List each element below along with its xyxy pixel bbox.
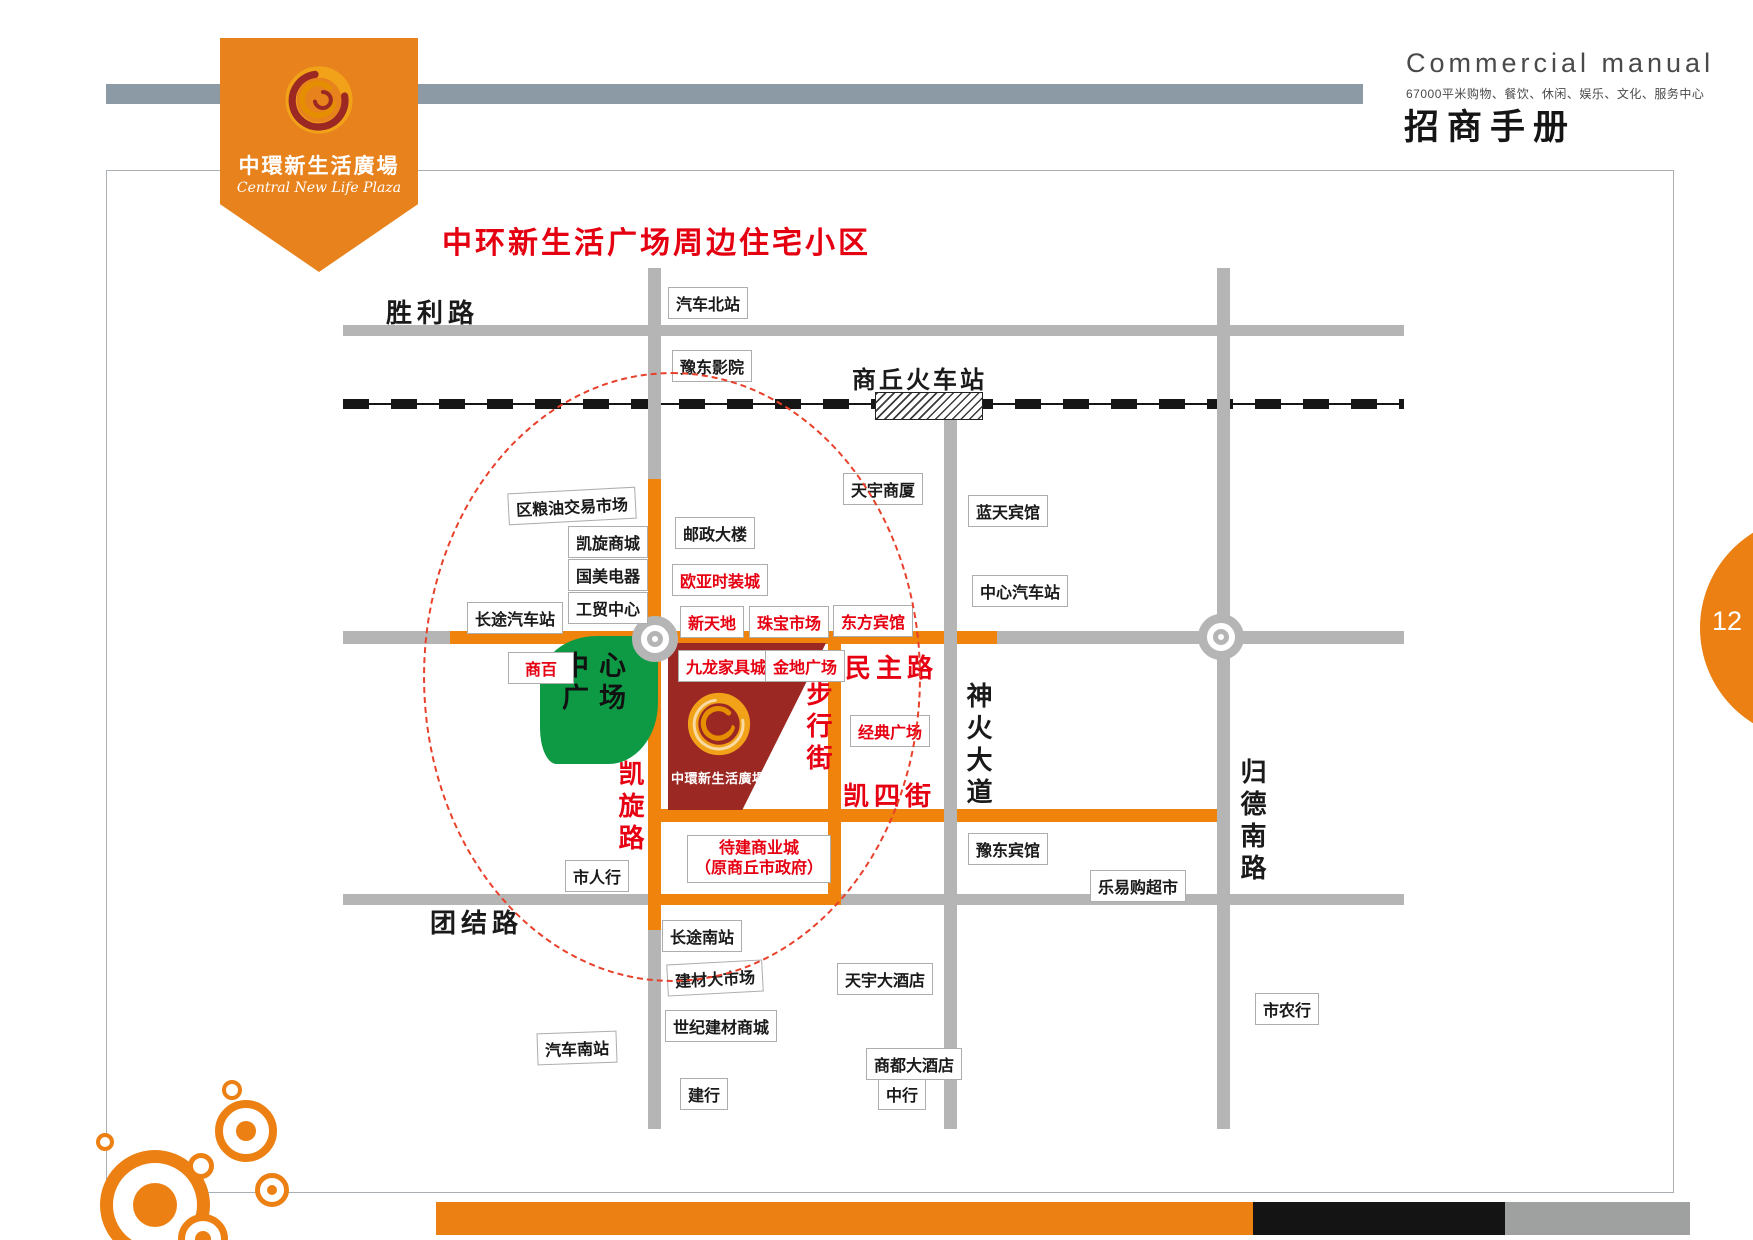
deco-dot-medium [236,1121,256,1141]
road-kaisi [655,809,1223,822]
poi-city-agricultural-bank: 市农行 [1255,993,1319,1025]
poi-jiulong-furniture-city: 九龙家具城 [678,650,774,682]
road-label-tuanjie: 团结路 [430,903,523,940]
road-label-railway-station: 商丘火车站 [852,360,987,395]
road-main-ew-west [343,631,450,644]
deco-ring-tiny-2 [96,1133,114,1151]
poi-kaixuan-mall: 凯旋商城 [568,526,648,558]
manual-title-en: Commercial manual [1406,48,1714,79]
poi-pending-mall-line2: （原商丘市政府） [695,859,823,879]
poi-boc-bank: 中行 [878,1078,926,1110]
deco-ring-tiny-1 [222,1080,242,1100]
poi-xintiandi: 新天地 [680,606,744,638]
railway-line [343,399,1404,409]
plaza-swirl-logo-icon [682,687,756,761]
manual-title-cn: 招商手册 [1404,99,1576,150]
poi-jindi-plaza: 金地广场 [765,650,845,682]
poi-lantian-hotel: 蓝天宾馆 [968,495,1048,527]
poi-tianyu-building: 天宇商厦 [843,473,923,505]
swirl-logo-icon [279,60,359,140]
map-title: 中环新生活广场周边住宅小区 [442,218,871,262]
road-label-kaixuan: 凯旋路 [612,760,649,856]
deco-ring-small-1 [188,1153,214,1179]
poi-century-building-materials-city: 世纪建材商城 [665,1010,777,1042]
poi-north-bus-station: 汽车北站 [668,287,748,319]
brochure-page: 中環新生活廣場 Central New Life Plaza Commercia… [0,0,1753,1240]
poi-city-peoples-bank: 市人行 [565,860,629,892]
page-number: 12 [1712,606,1742,637]
poi-jewelry-market: 珠宝市场 [749,606,829,638]
deco-dot-bottom [195,1231,211,1240]
brand-title-cn: 中環新生活廣場 [220,150,418,180]
roundabout-east [1198,614,1244,660]
deco-dot-large [133,1183,177,1227]
poi-jingdian-plaza: 经典广场 [850,715,930,747]
railway-station-platform [875,392,983,420]
road-label-guide-south: 归德南路 [1234,758,1271,886]
poi-pending-mall-line1: 待建商业城 [695,839,823,859]
poi-leyigou-supermarket: 乐易购超市 [1090,870,1186,902]
poi-ouya-fashion-city: 欧亚时装城 [672,564,768,596]
poi-tianyu-hotel: 天宇大酒店 [837,963,933,995]
footer-bar-orange [436,1202,1253,1235]
road-tuanjie-orange-segment [655,894,841,905]
road-label-minzhu: 民主路 [845,648,938,685]
poi-industry-trade-center: 工贸中心 [568,592,648,624]
poi-gome-electronics: 国美电器 [568,559,648,591]
footer-bar-black [1253,1202,1505,1235]
poi-changtu-south-station: 长途南站 [662,920,742,952]
poi-yudong-hotel: 豫东宾馆 [968,833,1048,865]
road-guide-south [1217,268,1230,1129]
brand-title-en: Central New Life Plaza [220,180,418,196]
road-label-pedestrian: 步行街 [800,680,837,776]
poi-dongfang-hotel: 东方宾馆 [833,605,913,637]
poi-grain-oil-market: 区粮油交易市场 [507,487,637,526]
footer-bar-gray [1505,1202,1690,1235]
road-kaixuan-north [648,268,661,479]
road-shengli [343,325,1404,336]
road-shenhuo [944,420,957,1129]
plaza-name-label: 中環新生活廣場 [671,768,766,787]
poi-pending-mall: 待建商业城 （原商丘市政府） [687,835,831,883]
poi-long-distance-bus-station: 长途汽车站 [467,602,563,634]
poi-shangdu-hotel: 商都大酒店 [866,1048,962,1080]
poi-south-bus-station: 汽车南站 [536,1031,617,1066]
poi-building-materials-market: 建材大市场 [666,960,764,997]
road-label-kaisi: 凯四街 [843,776,936,813]
poi-yudong-cinema: 豫东影院 [672,350,752,382]
road-label-shengli: 胜利路 [386,293,479,330]
road-label-shenhuo: 神火大道 [960,682,997,810]
poi-central-bus-station: 中心汽车站 [972,575,1068,607]
poi-post-building: 邮政大楼 [675,517,755,549]
deco-dot-small [267,1185,277,1195]
poi-shangbai: 商百 [508,652,574,684]
road-kaixuan-south [648,930,661,1129]
poi-ccb-bank: 建行 [680,1078,728,1110]
